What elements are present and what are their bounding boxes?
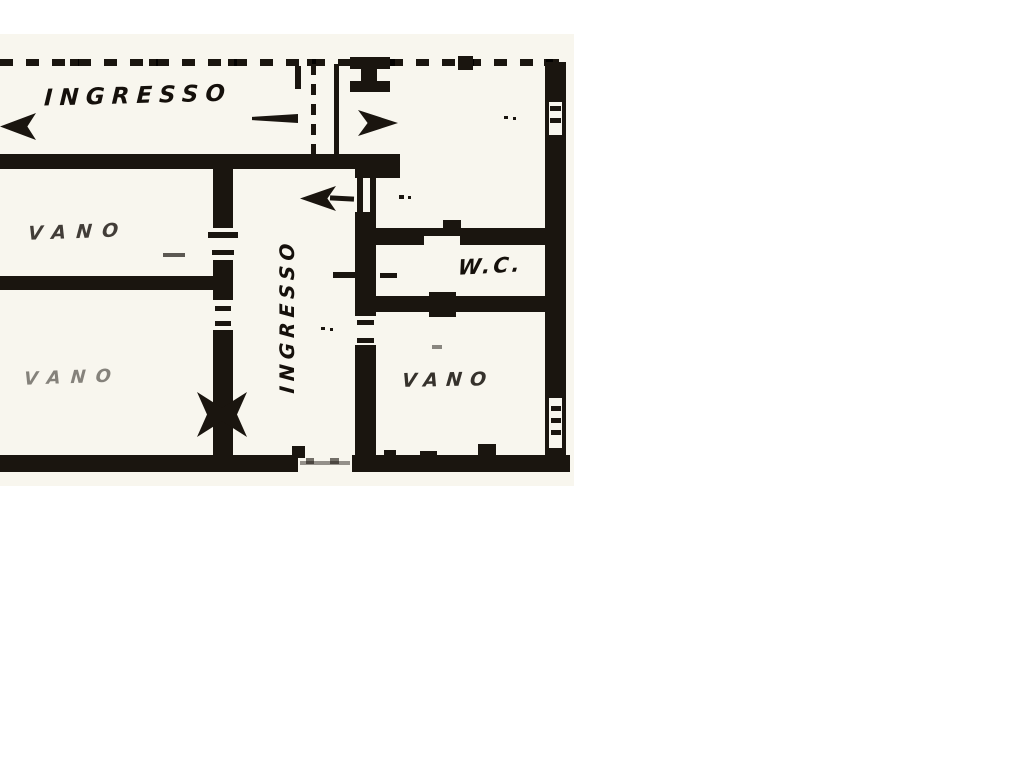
window-edge xyxy=(562,398,566,450)
window-icon xyxy=(550,118,561,123)
corridor-right-wall-jamb-left xyxy=(357,176,363,216)
scan-speck xyxy=(330,328,333,331)
scan-dash xyxy=(432,345,442,349)
wc-top-wall xyxy=(355,228,566,245)
corridor-right-wall-lower xyxy=(355,345,376,472)
floor-plan-scan: INGRESSO VANO VANO INGRESSO W.C. VANO xyxy=(0,0,1024,768)
door-pier-bottom-flange xyxy=(350,81,390,92)
scan-speck xyxy=(399,195,404,199)
threshold-tick xyxy=(306,458,314,464)
entrance-label: INGRESSO xyxy=(43,81,232,112)
door-jamb-tick xyxy=(212,250,234,255)
vano-bottom-right-label: VANO xyxy=(401,368,495,392)
bottom-wall-pier xyxy=(420,451,437,459)
scan-speck xyxy=(408,196,411,199)
top-wall-blob xyxy=(458,56,473,70)
entry-opening-line-left xyxy=(311,64,316,156)
measure-dash xyxy=(333,272,355,278)
window-edge xyxy=(562,100,566,137)
window-icon xyxy=(551,406,561,411)
scan-speck xyxy=(504,116,508,119)
window-icon xyxy=(551,430,561,435)
window-icon xyxy=(551,418,561,423)
scan-speck xyxy=(513,117,516,120)
entry-opening-line-right xyxy=(334,64,339,156)
right-exterior-wall-mid xyxy=(545,135,566,398)
wc-bottom-wall-pier xyxy=(429,292,456,317)
wc-label: W.C. xyxy=(457,252,524,280)
door-jamb-tick xyxy=(357,320,374,325)
measure-dash xyxy=(380,273,397,278)
door-jamb-tick xyxy=(215,306,231,311)
wc-bottom-wall xyxy=(355,296,566,312)
bottom-wall-pier xyxy=(384,450,396,458)
window-edge xyxy=(545,398,549,450)
corridor-right-wall-jamb-right xyxy=(370,176,376,216)
vano-top-left-label: VANO xyxy=(27,219,129,245)
scan-speck xyxy=(321,327,325,330)
left-rooms-divider-wall xyxy=(0,276,233,290)
window-edge xyxy=(545,100,549,137)
corridor-left-wall-upper xyxy=(213,154,233,228)
door-jamb-tick xyxy=(208,232,238,238)
window-icon xyxy=(550,106,561,111)
scan-dash xyxy=(163,253,185,257)
corridor-left-wall-lower xyxy=(213,330,233,472)
door-jamb-tick xyxy=(357,338,374,343)
right-exterior-wall-top xyxy=(545,62,566,102)
top-wall-stub xyxy=(295,66,301,89)
wc-door-opening xyxy=(424,236,460,246)
threshold-tick xyxy=(330,458,339,464)
main-horizontal-wall xyxy=(0,154,400,169)
bottom-exterior-wall-left xyxy=(0,455,298,472)
bottom-wall-pier xyxy=(292,446,305,458)
bottom-wall-pier xyxy=(478,444,496,457)
corridor-ingresso-label: INGRESSO xyxy=(275,230,299,402)
door-jamb-tick xyxy=(215,321,231,326)
vano-bottom-left-label: VANO xyxy=(23,365,121,389)
wc-top-wall-bump xyxy=(443,220,461,230)
top-exterior-wall-dashed xyxy=(0,59,566,66)
corridor-top-corner xyxy=(355,154,400,178)
